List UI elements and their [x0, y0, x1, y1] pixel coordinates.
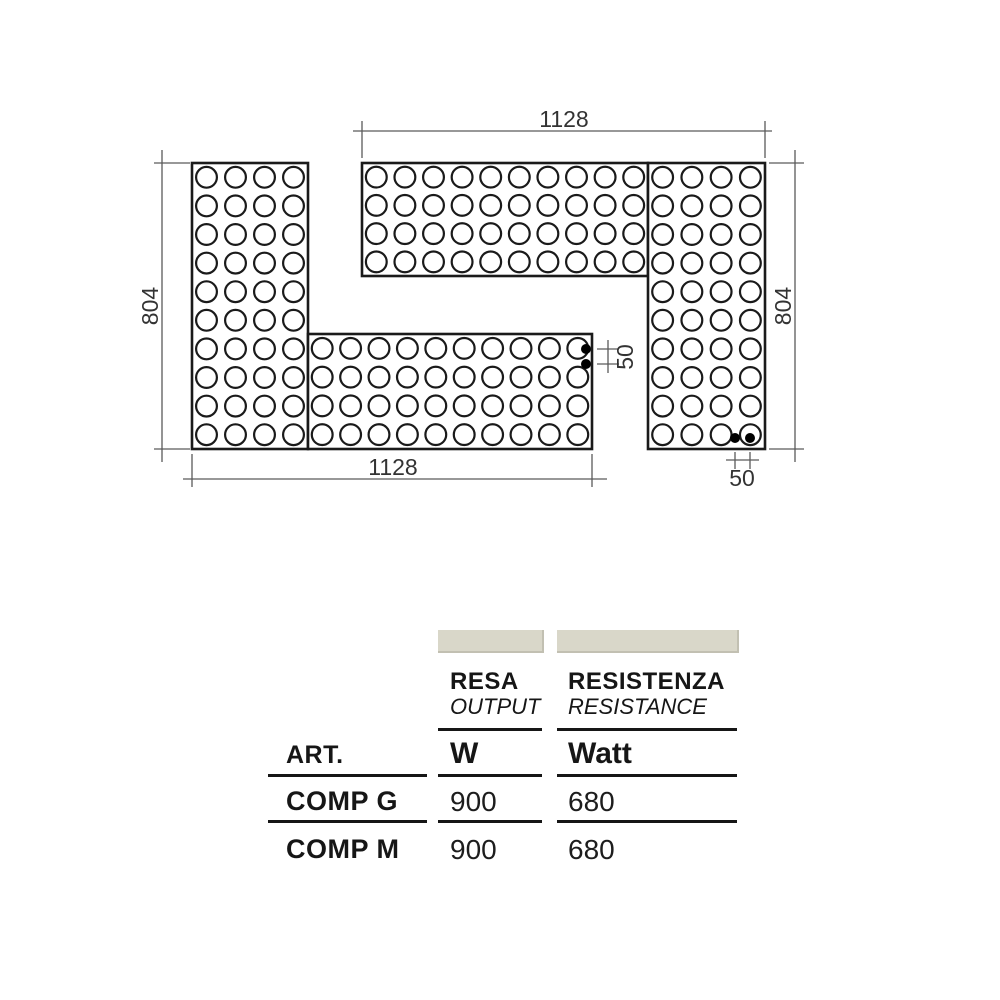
- col-resistenza-subtitle: RESISTANCE: [568, 696, 707, 718]
- color-swatch-resistenza: [557, 630, 739, 653]
- unit-rule-resistenza: [557, 774, 737, 777]
- unit-resa: W: [450, 739, 478, 769]
- col-resa-subtitle: OUTPUT: [450, 696, 540, 718]
- row-comp-m-art: COMP M: [286, 836, 400, 863]
- color-swatch-resa: [438, 630, 544, 653]
- col-resistenza-title: RESISTENZA: [568, 670, 725, 694]
- col-resa-title: RESA: [450, 670, 519, 694]
- spec-table: RESA OUTPUT RESISTENZA RESISTANCE ART. W…: [0, 0, 1000, 1000]
- header-rule-resa: [438, 728, 542, 731]
- row-comp-g-resistenza: 680: [568, 788, 615, 816]
- row-rule-resa: [438, 820, 542, 823]
- art-header: ART.: [286, 743, 344, 768]
- row-comp-g-resa: 900: [450, 788, 497, 816]
- unit-resistenza: Watt: [568, 739, 632, 769]
- header-rule-resistenza: [557, 728, 737, 731]
- page: 112811288048045050 RESA OUTPUT RESISTENZ…: [0, 0, 1000, 1000]
- row-comp-g-art: COMP G: [286, 788, 398, 815]
- row-comp-m-resa: 900: [450, 836, 497, 864]
- unit-rule-art: [268, 774, 427, 777]
- row-rule-art: [268, 820, 427, 823]
- row-comp-m-resistenza: 680: [568, 836, 615, 864]
- unit-rule-resa: [438, 774, 542, 777]
- row-rule-resistenza: [557, 820, 737, 823]
